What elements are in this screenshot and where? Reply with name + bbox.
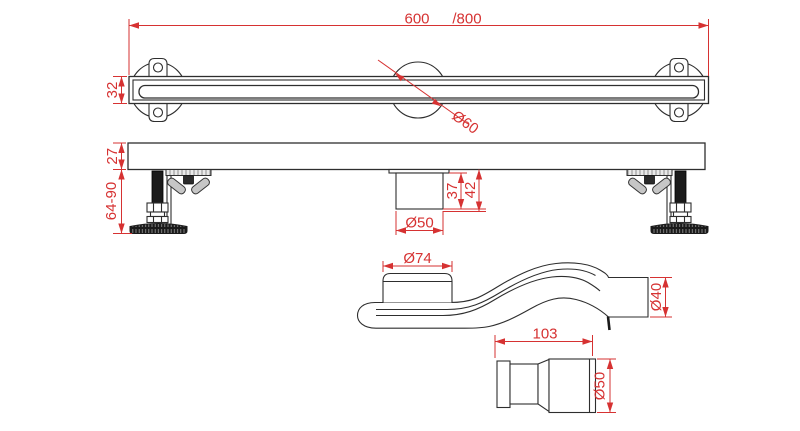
front-view: 27 64-90 37 42 Ø50 (103, 143, 708, 235)
dim-label-spigot-diameter: Ø50 (405, 215, 433, 232)
top-view: 600 /800 32 Ø60 (104, 11, 709, 138)
dim-label-channel-height: 32 (104, 82, 121, 99)
dim-trap-outlet-diameter: Ø40 (648, 278, 672, 318)
trap-inlet-dome (383, 274, 452, 303)
dim-label-waste-diameter: Ø60 (449, 107, 482, 137)
dim-label-spigot-total-depth: 42 (462, 182, 479, 199)
dim-spigot-diameter: Ø50 (396, 211, 443, 235)
screw-hole-icon (154, 63, 163, 72)
technical-drawing-canvas: 600 /800 32 Ø60 (0, 0, 800, 431)
dim-label-spigot-depth: 37 (444, 183, 461, 200)
dim-length: 600 /800 (129, 11, 709, 77)
dim-foot-height: 64-90 (103, 170, 132, 234)
dim-label-length-alt: /800 (452, 11, 481, 28)
left-leg (130, 170, 211, 234)
dim-label-length: 600 (404, 11, 429, 28)
dim-label-body-height: 27 (104, 148, 121, 165)
dim-channel-height: 32 (104, 77, 127, 104)
dim-label-trap-outlet-diameter: Ø40 (648, 283, 665, 311)
right-leg (627, 170, 708, 234)
dim-label-inlet-diameter: Ø74 (403, 250, 431, 267)
dim-label-coupling-length: 103 (532, 326, 557, 343)
dim-label-coupling-diameter: Ø50 (592, 372, 609, 400)
coupling-view: 103 Ø50 (495, 326, 616, 413)
channel-body (128, 143, 705, 170)
dim-spigot-depth: 37 42 (443, 170, 486, 212)
screw-hole-icon (675, 63, 684, 72)
outlet-spigot (389, 170, 449, 210)
screw-hole-icon (675, 108, 684, 117)
trap-side-view: Ø74 Ø40 (358, 250, 673, 330)
drawing-sheet: 600 /800 32 Ø60 (0, 0, 800, 431)
outlet-seam-mark (608, 317, 610, 331)
dim-inlet-diameter: Ø74 (383, 250, 452, 272)
dim-body-height: 27 (104, 143, 126, 170)
screw-hole-icon (154, 108, 163, 117)
dim-label-foot-height: 64-90 (103, 182, 120, 220)
drain-channel (129, 77, 709, 104)
dim-coupling-length: 103 (495, 326, 593, 359)
coupling-body (497, 359, 596, 413)
